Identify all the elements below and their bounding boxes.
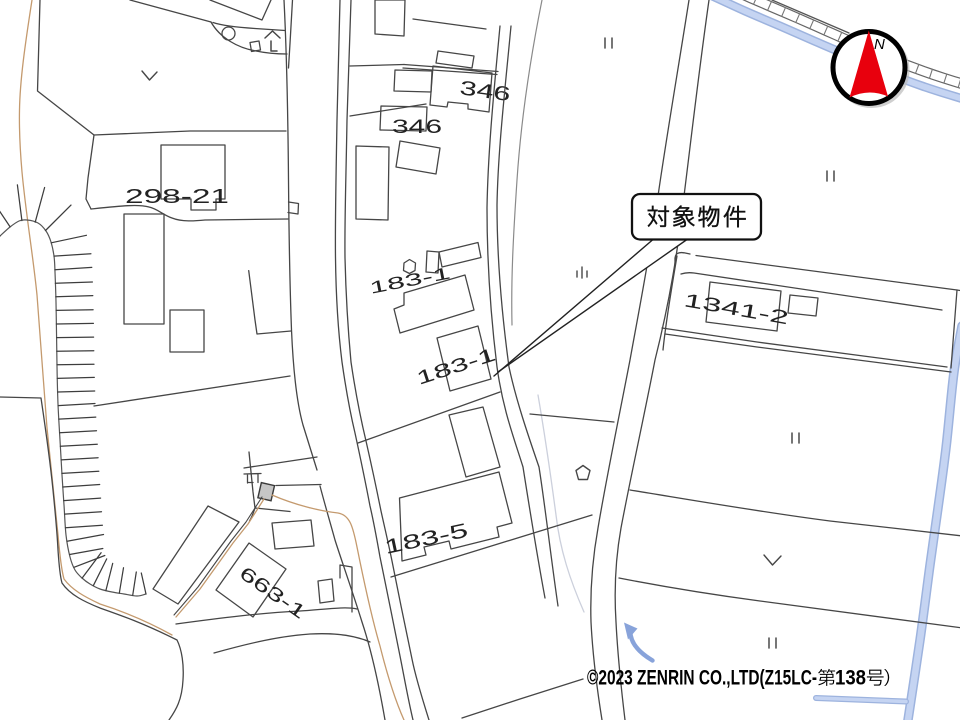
svg-text:346: 346 (392, 117, 442, 138)
svg-text:138: 138 (835, 667, 866, 690)
svg-text:©2023 ZENRIN CO.,LTD(Z15LC-: ©2023 ZENRIN CO.,LTD(Z15LC- (587, 667, 817, 690)
svg-text:N: N (874, 36, 885, 53)
svg-text:298-21: 298-21 (125, 186, 229, 208)
